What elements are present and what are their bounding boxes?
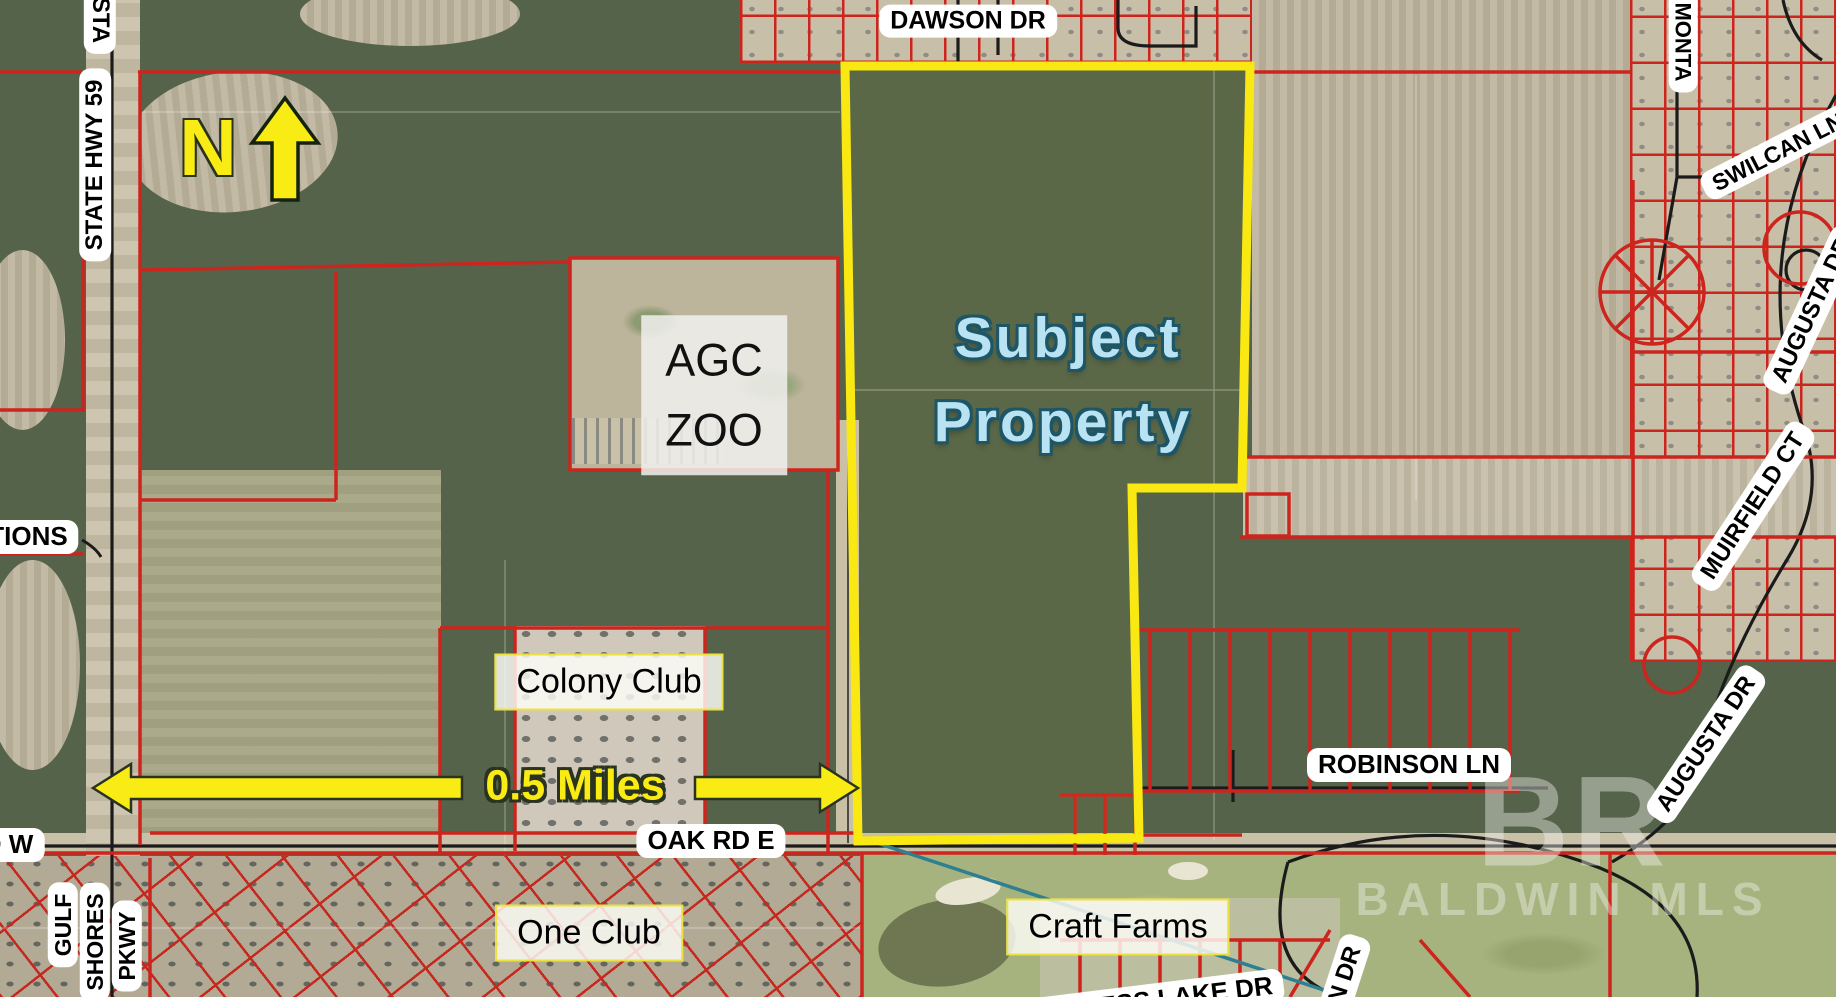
north-arrow-icon bbox=[252, 98, 318, 200]
road-label-pkwy: PKWY bbox=[112, 901, 142, 992]
scale-arrow-left bbox=[93, 764, 462, 812]
road-label-dawson-dr: DAWSON DR bbox=[879, 5, 1057, 38]
scale-arrow-right bbox=[695, 764, 858, 812]
place-label-colony-club: Colony Club bbox=[494, 654, 723, 711]
scale-label: 0.5 Miles bbox=[485, 762, 664, 811]
place-label-one-club: One Club bbox=[495, 905, 683, 962]
road-label-oak-rd-e: OAK RD E bbox=[636, 824, 785, 858]
road-label-state-hwy-partial: STA bbox=[84, 0, 116, 54]
watermark-name: BALDWIN MLS bbox=[1355, 872, 1770, 926]
road-label-gulf: GULF bbox=[48, 883, 78, 968]
place-label-agc-zoo: AGC ZOO bbox=[641, 315, 787, 475]
north-label: N bbox=[179, 102, 237, 194]
subject-property-label-line1: Subject bbox=[955, 305, 1182, 371]
aerial-map: BR BALDWIN MLS DAWSON DR MONTA SWILCAN L… bbox=[0, 0, 1836, 997]
agc-zoo-line1: AGC bbox=[665, 325, 763, 395]
road-label-robinson-ln: ROBINSON LN bbox=[1307, 748, 1511, 782]
road-label-oak-rd-w: D W bbox=[0, 828, 44, 862]
place-label-craft-farms: Craft Farms bbox=[1006, 899, 1229, 956]
road-label-shores: SHORES bbox=[80, 882, 110, 997]
subject-property-label-line2: Property bbox=[934, 389, 1192, 455]
road-label-monta: MONTA bbox=[1668, 0, 1697, 93]
road-label-tions: TIONS bbox=[0, 520, 79, 554]
agc-zoo-line2: ZOO bbox=[665, 395, 763, 465]
road-label-state-hwy-59: STATE HWY 59 bbox=[79, 69, 111, 262]
